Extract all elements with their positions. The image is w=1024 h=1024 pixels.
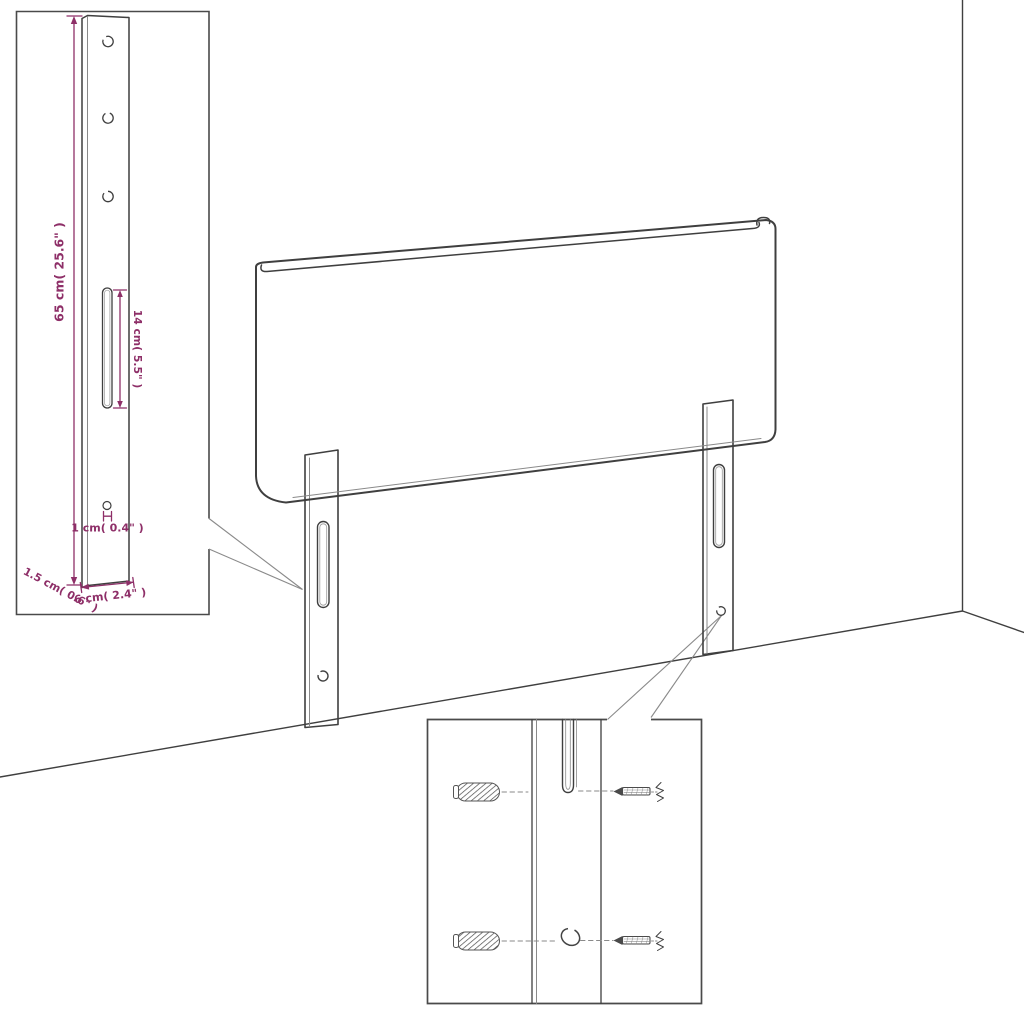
right-leg-slot: [714, 465, 725, 548]
right-leg: [703, 400, 733, 655]
left-leg-slot: [318, 522, 330, 608]
headboard-bottom-edge-line: [293, 439, 761, 498]
bracket-small-hole: [103, 502, 111, 510]
headboard-diagram: 65 cm( 25.6" ) 14 cm( 5.5" ) 1 cm( 0.4" …: [0, 0, 1024, 1024]
wall-plug-bottom: [454, 932, 500, 950]
bracket-slot: [103, 288, 113, 408]
dim-label-hole: 1 cm( 0.4" ): [71, 522, 143, 535]
bracket-detail-inset: 65 cm( 25.6" ) 14 cm( 5.5" ) 1 cm( 0.4" …: [17, 12, 210, 616]
callout-right-leg-to-inset: [608, 616, 722, 720]
headboard-panel: [256, 218, 776, 503]
dim-label-slot: 14 cm( 5.5" ): [131, 310, 144, 389]
mounting-inset-frame: [428, 720, 702, 1004]
mounting-detail-inset: [428, 720, 702, 1004]
callout-inset-to-left-leg: [209, 519, 303, 590]
wall-plug-top: [454, 783, 500, 801]
headboard-top-lip: [261, 223, 759, 272]
left-leg: [305, 450, 338, 728]
right-leg-hole: [715, 605, 727, 617]
dim-label-height: 65 cm( 25.6" ): [52, 222, 67, 322]
left-leg-hole: [316, 669, 330, 683]
diagram-canvas: 65 cm( 25.6" ) 14 cm( 5.5" ) 1 cm( 0.4" …: [0, 0, 1024, 1024]
bracket-hole-3: [103, 191, 113, 201]
